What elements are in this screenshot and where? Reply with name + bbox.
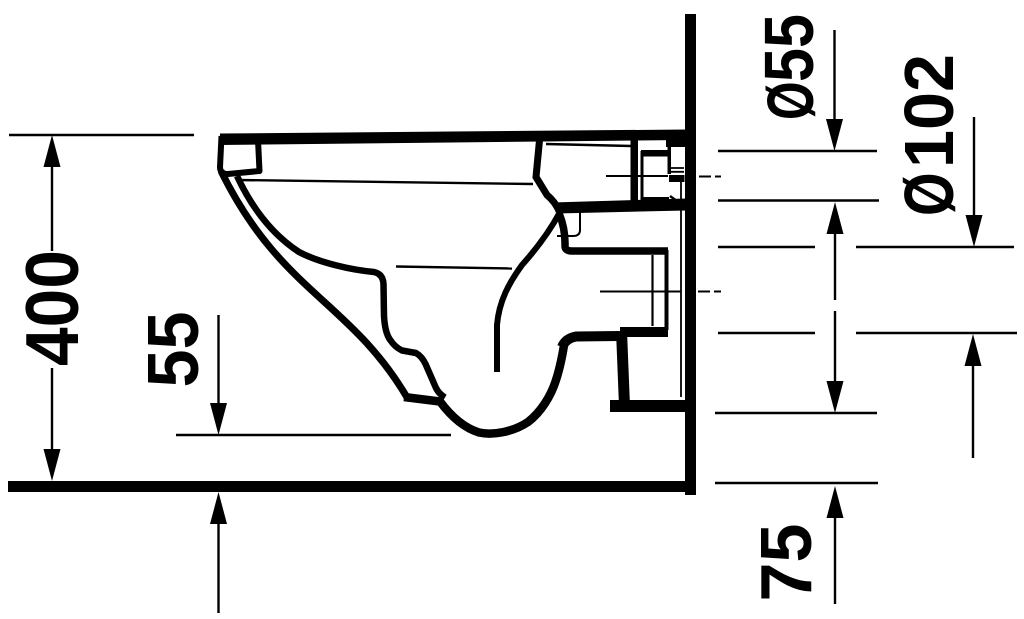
- svg-text:55: 55: [750, 14, 828, 82]
- svg-text:102: 102: [890, 54, 968, 168]
- svg-text:400: 400: [10, 250, 94, 366]
- svg-text:Ø: Ø: [891, 172, 968, 216]
- svg-text:Ø: Ø: [754, 81, 828, 120]
- svg-text:55: 55: [134, 312, 214, 388]
- svg-text:75: 75: [747, 524, 827, 602]
